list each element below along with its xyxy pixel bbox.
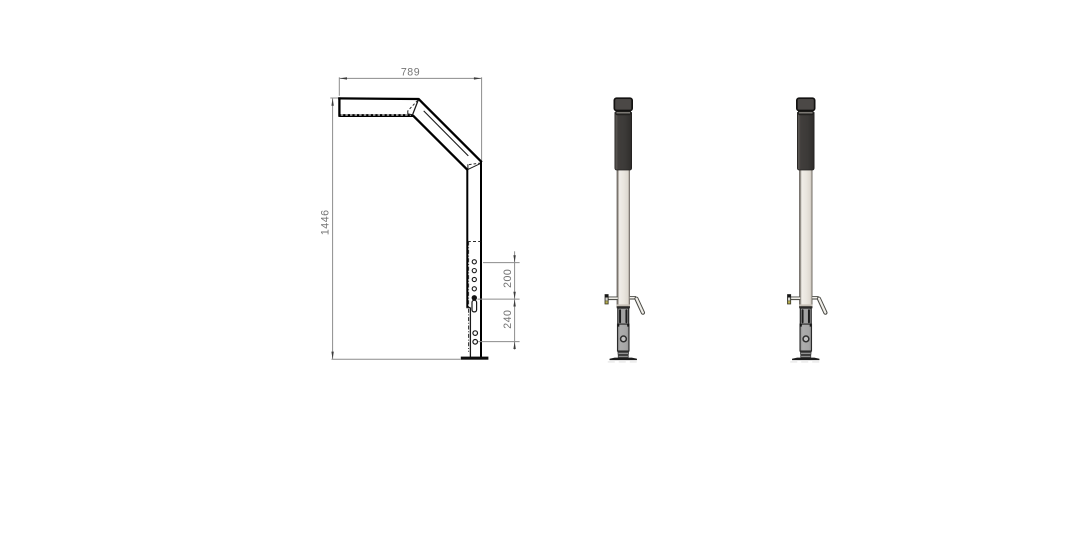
svg-text:240: 240 [502, 310, 514, 329]
svg-text:200: 200 [502, 269, 514, 288]
svg-text:1446: 1446 [320, 210, 332, 236]
svg-text:789: 789 [401, 67, 420, 79]
